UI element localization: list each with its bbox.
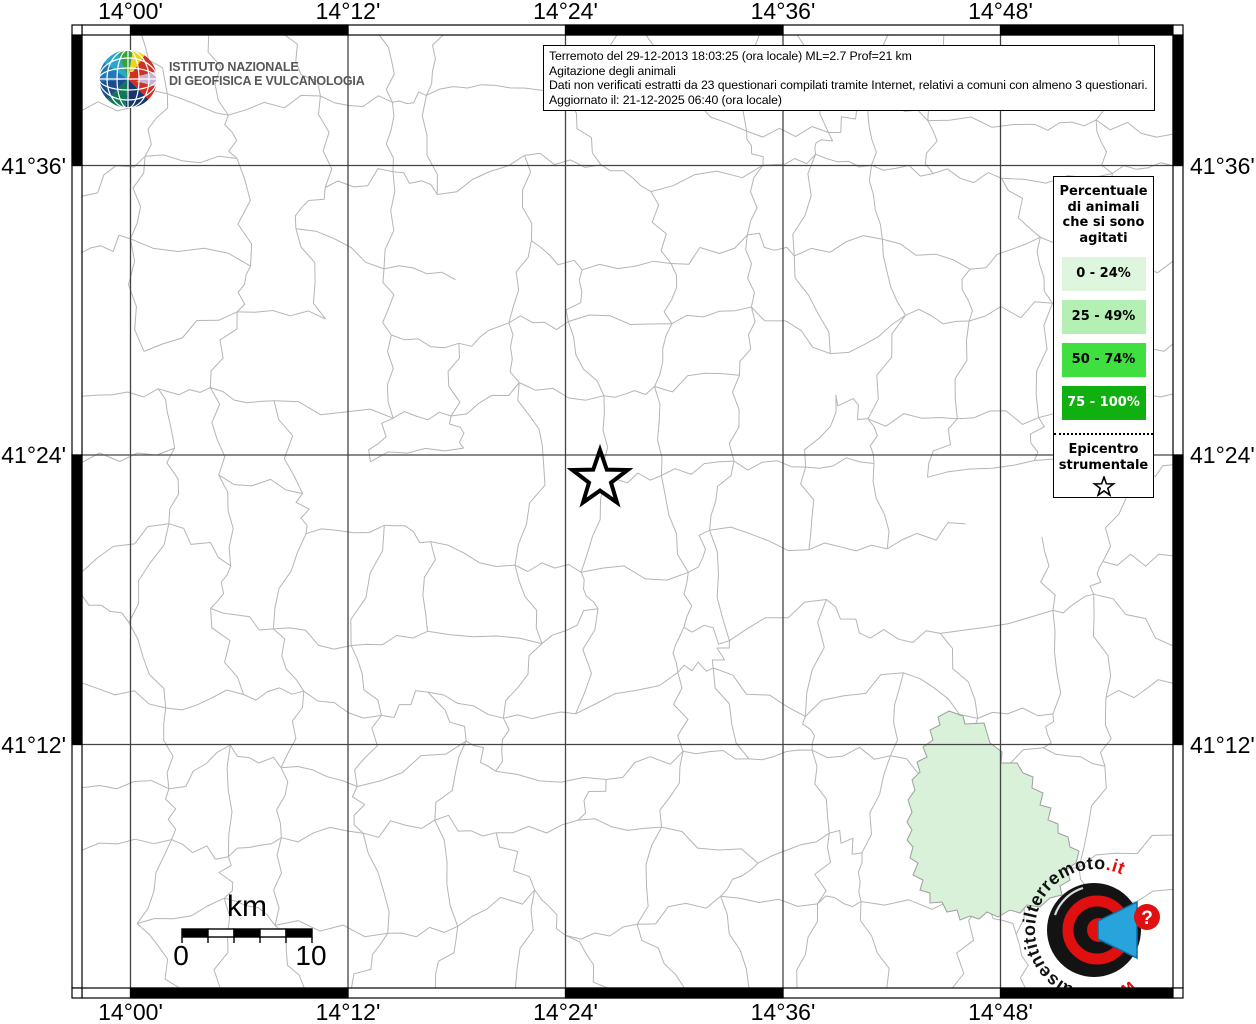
municipality-boundary [969,302,1052,321]
axis-label-top: 14°00' [61,0,201,25]
municipality-boundary [1037,237,1052,303]
municipality-boundary [801,467,814,550]
municipality-boundary [568,322,604,396]
municipality-boundary [320,96,392,107]
frame-band [72,455,82,745]
municipality-boundary [818,896,862,907]
municipality-boundary [227,745,232,857]
municipality-boundary [1053,610,1061,714]
municipality-boundary [518,383,544,463]
municipality-boundary [166,789,176,840]
municipality-boundary [503,644,542,719]
municipality-boundary [304,691,382,718]
municipality-boundary [277,768,288,838]
municipality-boundary [393,172,437,195]
municipality-boundary [82,524,169,572]
municipality-boundary [684,625,730,644]
municipality-boundary [503,712,575,719]
municipality-boundary [296,229,384,269]
municipality-boundary [210,312,237,388]
axis-label-bottom: 14°24' [496,999,636,1024]
epicenter-star-icon [572,450,627,503]
municipality-boundary [466,741,496,771]
municipality-boundary [1112,163,1173,174]
municipality-boundary [458,890,535,926]
municipality-boundary [830,315,905,353]
municipality-boundary [130,239,250,266]
scalebar-unit-label: km [227,890,267,923]
frame-band [72,988,82,998]
municipality-boundary [868,419,878,464]
scalebar-segment [234,929,260,937]
municipality-boundary [683,751,749,760]
municipality-boundary [509,241,532,323]
municipality-boundary [747,233,794,256]
municipality-boundary [158,388,210,395]
municipality-boundary [763,154,816,165]
municipality-boundary [860,902,889,989]
municipality-boundary [566,270,582,322]
municipality-boundary [230,745,281,768]
municipality-boundary [169,745,230,789]
municipality-boundary [604,387,655,398]
municipality-boundary [805,395,837,467]
legend-epicenter-line: strumentale [1054,458,1153,474]
municipality-boundary [210,388,274,403]
municipality-boundary [129,524,169,623]
municipality-boundary [1044,714,1054,748]
municipality-boundary [873,464,889,549]
municipality-boundary [812,750,829,833]
municipality-boundary [381,691,428,718]
legend: Percentuale di animali che si sono agita… [1053,176,1154,498]
municipality-boundary [435,926,457,988]
municipality-boundary [211,608,274,630]
frame-band [72,35,82,166]
municipality-boundary [509,323,519,383]
municipality-boundary [684,572,692,627]
info-line-type: Agitazione degli animali [549,64,1149,79]
municipality-boundary [82,389,158,397]
municipality-boundary [566,924,637,939]
municipality-boundary [882,239,905,315]
municipality-boundary [862,756,890,853]
municipality-boundary [210,388,225,475]
municipality-boundary [237,311,326,320]
municipality-boundary [531,241,582,270]
municipality-boundary [386,102,394,172]
municipality-boundary [225,115,237,158]
municipality-boundary [1090,562,1103,595]
axis-label-top: 14°48' [931,0,1071,25]
municipality-boundary [868,414,958,427]
municipality-boundary [713,668,805,717]
municipality-boundary [674,672,689,751]
municipality-boundary [295,188,325,229]
municipality-boundary [448,343,460,416]
municipality-boundary [428,631,542,643]
municipality-boundary [519,383,604,401]
municipality-boundary [426,35,443,95]
municipality-boundary [351,631,427,645]
axis-label-top: 14°36' [713,0,853,25]
municipality-boundary [422,95,437,194]
municipality-boundary [319,96,332,188]
ingv-logo-line1: ISTITUTO NAZIONALE [169,61,365,75]
municipality-boundary [566,936,608,989]
municipality-boundary [805,673,903,717]
municipality-boundary [655,373,740,392]
municipality-boundary [957,411,1038,425]
municipality-boundary [826,600,870,639]
scalebar-segment [208,929,234,937]
scalebar-start-label: 0 [173,940,189,971]
axis-label-bottom: 14°00' [61,999,201,1024]
axis-label-right: 41°36' [1190,153,1256,180]
frame-band [1173,25,1183,35]
municipality-boundary [606,751,683,779]
legend-star-container [1054,476,1153,502]
municipality-boundary [601,165,651,192]
municipality-boundary [978,708,1053,718]
municipality-boundary [651,192,671,264]
municipality-boundary [1044,748,1105,766]
municipality-boundary [437,155,524,194]
municipality-boundary [172,840,229,860]
municipality-boundary [868,103,877,166]
info-line-disclaimer: Dati non verificati estratti da 23 quest… [549,78,1149,93]
municipality-boundary [955,321,969,419]
municipality-boundary [363,820,435,837]
legend-title: Percentuale di animali che si sono agita… [1054,184,1153,246]
municipality-boundary [578,819,662,831]
ingv-logo-line2: DI GEOFISICA E VULCANOLOGIA [169,75,365,89]
municipality-boundary [1103,554,1173,566]
municipality-boundary [710,527,809,551]
municipality-boundary [435,815,496,836]
municipality-boundary [729,375,739,461]
municipality-boundary [384,525,430,542]
municipality-boundary [82,781,169,789]
municipality-boundary [637,827,661,924]
municipality-boundary [281,827,363,842]
municipality-boundary [82,683,166,708]
municipality-boundary [928,461,1035,478]
axis-label-left: 41°36' [0,153,66,180]
municipality-boundary [211,566,231,609]
municipality-boundary [829,831,862,855]
municipality-boundary [576,672,678,713]
municipality-boundary [515,563,581,572]
municipality-boundary [496,833,535,890]
municipality-boundary [169,524,231,566]
municipality-boundary [306,525,384,533]
municipality-boundary [228,838,281,857]
frame-band [1173,988,1183,998]
municipality-boundary [882,239,970,269]
municipality-boundary [740,307,756,375]
municipality-boundary [661,461,734,475]
municipality-boundary [352,787,364,834]
municipality-boundary [906,309,970,324]
axis-label-bottom: 14°12' [278,999,418,1024]
municipality-boundary [379,35,394,102]
ingv-globe-icon [99,50,157,108]
municipality-boundary [449,416,464,448]
frame-band [566,25,784,35]
municipality-boundary [809,543,887,551]
scalebar-segment [286,929,312,937]
municipality-boundary [836,395,868,420]
municipality-boundary [428,692,504,718]
watermark-tld: .it [1105,854,1129,879]
municipality-boundary [710,461,734,530]
municipality-boundary [387,335,393,418]
municipality-boundary [713,668,749,759]
municipality-boundary [671,235,747,264]
municipality-boundary [758,833,829,863]
municipality-boundary [734,461,806,470]
municipality-boundary [805,600,826,717]
municipality-boundary [651,165,763,191]
axis-label-bottom: 14°48' [931,999,1071,1024]
municipality-boundary [962,269,973,321]
municipality-boundary [392,92,426,104]
info-line-event: Terremoto del 29-12-2013 18:03:25 (ora l… [549,49,1149,64]
municipality-boundary [355,715,382,786]
ingv-logo-text: ISTITUTO NAZIONALE DI GEOFISICA E VULCAN… [169,61,365,88]
municipality-boundary [496,771,606,782]
municipality-boundary [970,237,1040,269]
municipality-boundary [423,542,436,632]
municipality-boundary [688,530,709,572]
municipality-boundary [1036,303,1052,417]
info-box: Terremoto del 29-12-2013 18:03:25 (ora l… [543,45,1155,111]
municipality-boundary [794,256,830,354]
epicenter-star-legend-icon [1092,476,1116,498]
municipality-boundary [158,389,174,448]
municipality-boundary [904,673,978,719]
municipality-boundary [576,609,598,714]
municipality-boundary [1096,120,1173,137]
municipality-boundary [870,630,940,643]
municipality-boundary [1035,120,1096,130]
municipality-boundary [435,820,458,926]
frame-band [1001,25,1174,35]
legend-title-line: agitati [1054,231,1153,247]
municipality-boundary [890,673,903,756]
axis-label-right: 41°24' [1190,442,1256,469]
municipality-boundary [815,833,831,904]
municipality-boundary [568,315,672,325]
municipality-boundary [167,94,228,115]
axis-label-top: 14°24' [496,0,636,25]
municipality-boundary [661,476,688,573]
municipality-boundary [1079,766,1106,868]
municipality-boundary [515,890,534,988]
municipality-boundary [211,608,244,694]
municipality-boundary [868,315,906,419]
municipality-boundary [351,525,385,645]
municipality-boundary [928,117,1035,127]
municipality-boundary [388,926,458,937]
info-line-updated: Aggiornato il: 21-12-2025 06:40 (ora loc… [549,93,1149,108]
scalebar-end-label: 10 [295,940,326,971]
municipality-boundary [721,896,749,988]
frame-band [131,988,349,998]
municipality-boundary [887,523,965,549]
municipality-boundary [673,627,684,672]
municipality-boundary [393,412,451,420]
legend-title-line: di animali [1054,200,1153,216]
municipality-boundary [82,595,129,622]
municipality-boundary [82,839,172,850]
municipality-boundary [451,383,519,417]
municipality-boundary [273,628,351,649]
municipality-boundary [273,534,306,629]
municipality-boundary [721,896,818,906]
municipality-boundary [933,169,1001,183]
scalebar [182,929,312,943]
municipality-boundary [747,165,763,235]
axis-label-right: 41°12' [1190,732,1256,759]
municipality-boundary [747,127,829,138]
municipality-boundary [678,662,713,672]
legend-epicenter-label: Epicentro strumentale [1054,442,1153,474]
municipality-boundary [729,600,826,641]
municipality-boundary [710,530,730,641]
frame-band [1173,455,1183,745]
municipality-boundary [82,235,130,252]
municipality-boundary [129,623,166,708]
legend-title-line: che si sono [1054,215,1153,231]
municipality-boundary [228,95,320,115]
municipality-boundary [384,266,455,280]
axis-label-left: 41°24' [0,442,66,469]
municipality-boundary [655,324,672,387]
municipality-boundary [391,335,459,348]
legend-swatch-0-24: 0 - 24% [1062,257,1146,291]
globe-center-square [130,72,139,81]
legend-swatch-25-49: 25 - 49% [1062,300,1146,334]
municipality-boundary [82,156,145,196]
municipality-boundary [244,688,304,700]
municipality-boundary [664,264,677,324]
scalebar-segment [182,929,208,937]
municipality-boundary [166,690,244,710]
municipality-boundary [167,448,179,524]
axis-label-top: 14°12' [278,0,418,25]
municipality-boundary [523,155,532,240]
municipality-boundary [582,261,671,270]
municipality-boundary [431,542,515,567]
municipality-boundary [1093,594,1110,697]
municipality-boundary [721,863,758,896]
legend-divider [1054,433,1153,435]
axis-label-bottom: 14°36' [713,999,853,1024]
municipality-boundary [237,159,252,267]
municipality-boundary [797,904,818,988]
municipality-boundary [509,316,568,330]
frame-band [1001,988,1174,998]
municipality-boundary [515,565,542,644]
municipality-boundary [515,463,545,565]
frame-band [1173,35,1183,166]
municipality-boundary [137,840,172,924]
municipality-boundary [672,307,752,324]
municipality-boundary [746,235,755,307]
municipality-boundary [581,566,688,580]
municipality-boundary [872,165,934,176]
municipality-boundary [281,691,304,768]
municipality-boundary [274,401,393,418]
municipality-boundary [325,169,393,188]
municipality-boundary [237,266,250,312]
municipality-boundary [940,610,1053,633]
municipality-boundary [928,419,958,478]
municipality-boundary [940,633,977,718]
municipality-boundary [459,323,509,347]
axis-label-left: 41°12' [0,732,66,759]
municipality-boundary [806,458,874,468]
municipality-boundary [130,156,145,239]
legend-swatch-50-74: 50 - 74% [1062,343,1146,377]
scalebar-segment [260,929,286,937]
epicenter-star [572,450,627,503]
municipality-boundary [144,312,237,352]
legend-epicenter-line: Epicentro [1054,442,1153,458]
municipality-boundary [662,827,758,863]
municipality-boundary [812,747,890,759]
municipality-boundary [164,708,173,789]
municipality-boundary [219,475,303,494]
municipality-boundary [581,572,598,608]
legend-title-line: Percentuale [1054,184,1153,200]
globe-sectors [99,50,157,108]
municipality-boundary [1053,594,1094,613]
municipality-boundary [273,629,303,691]
municipality-boundary [858,853,862,902]
municipality-boundary [1041,537,1056,611]
municipality-boundary [535,890,566,936]
municipality-boundary [1002,178,1041,237]
municipality-boundary [296,494,309,534]
map: km 0 10 www.haisentitoilterremoto.it ? [0,0,1256,1024]
municipality-boundary [1030,418,1044,461]
municipality-boundary [749,750,812,760]
municipality-boundary [145,155,237,163]
municipality-boundary [1101,698,1112,767]
municipality-boundary [794,236,882,256]
municipality-boundary [145,94,168,157]
municipality-boundary [384,172,395,269]
frame-band [72,25,82,35]
municipality-boundary [793,154,816,256]
municipality-boundary [637,896,720,924]
municipality-boundary [712,641,729,668]
municipality-boundary [357,741,466,786]
municipality-boundary [637,924,684,988]
municipality-boundary [383,269,394,335]
municipality-boundary [296,229,326,320]
frame-band [131,25,349,35]
map-page: km 0 10 www.haisentitoilterremoto.it ? T… [0,0,1256,1024]
municipality-boundary [578,780,606,821]
municipality-boundary [219,475,234,566]
municipality-boundary [655,387,663,476]
municipality-boundary [869,165,882,239]
municipality-boundary [363,833,389,933]
